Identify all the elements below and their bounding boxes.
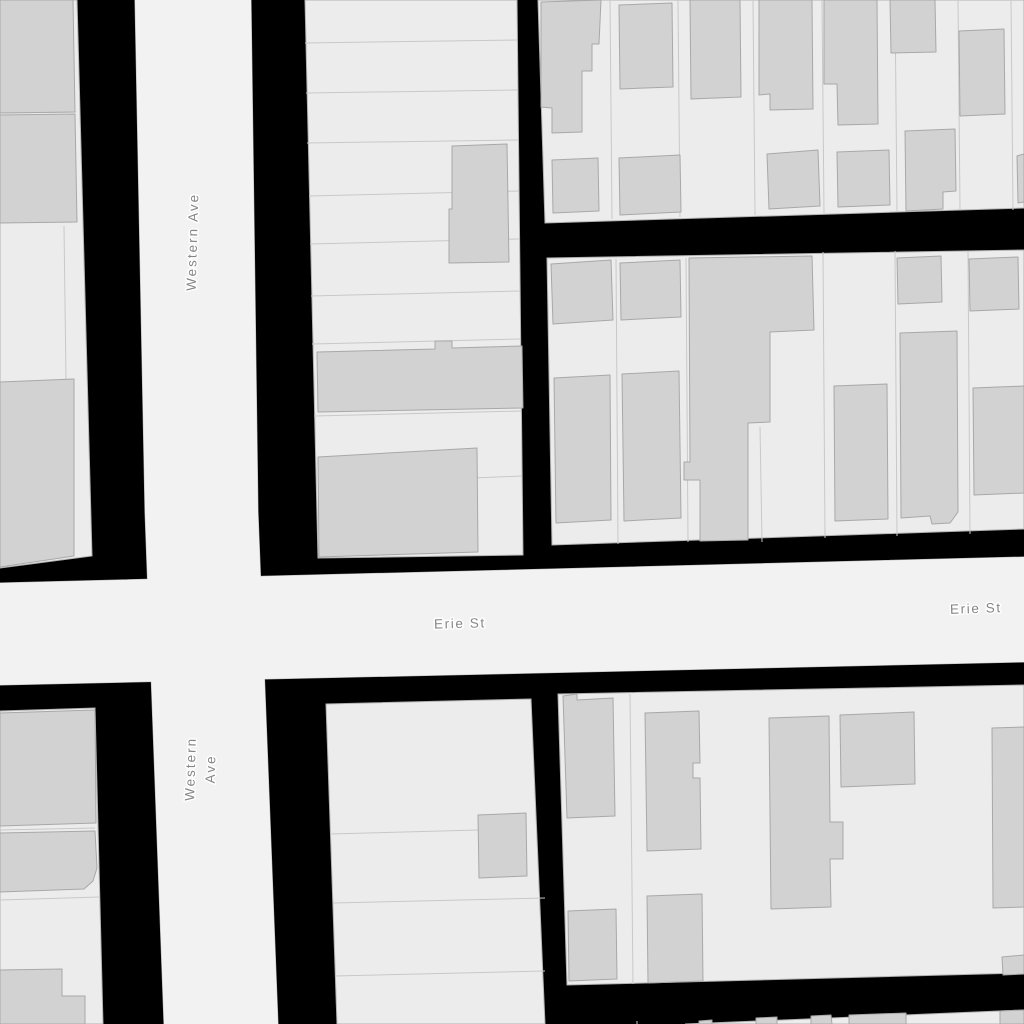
- street-label-western-ave-bottom: Ave: [203, 754, 219, 783]
- building-footprint: [690, 0, 741, 99]
- building-footprint: [837, 150, 890, 207]
- street-label-erie-st-west: Erie St: [434, 615, 486, 631]
- building-footprint: [699, 1020, 712, 1024]
- building-footprint: [969, 257, 1019, 311]
- building-footprint: [318, 448, 478, 557]
- building-footprint: [619, 3, 673, 89]
- street-label-western-ave-bottom: Western: [182, 737, 199, 801]
- building-footprint: [0, 831, 97, 892]
- building-footprint: [840, 712, 915, 787]
- building-footprint: [317, 341, 523, 412]
- building-footprint: [619, 155, 681, 215]
- street-label-western-ave-top: Western Ave: [184, 193, 202, 291]
- building-footprint: [900, 331, 958, 524]
- map-canvas[interactable]: Western AveWesternAveErie StErie St: [0, 0, 1024, 1024]
- building-footprint: [449, 144, 509, 263]
- building-footprint: [622, 371, 681, 521]
- building-footprint: [1002, 955, 1024, 975]
- building-footprint: [563, 694, 615, 818]
- building-footprint: [834, 384, 888, 521]
- street-label-erie-st-east: Erie St: [950, 600, 1002, 617]
- building-footprint: [552, 158, 599, 213]
- building-footprint: [959, 29, 1005, 116]
- building-footprint: [645, 711, 701, 851]
- building-footprint: [897, 256, 942, 304]
- street-surface-western-ave: [135, 0, 278, 1024]
- building-footprint: [0, 114, 77, 223]
- building-footprint: [759, 0, 813, 110]
- building-footprint: [767, 150, 820, 209]
- building-footprint: [0, 710, 96, 826]
- building-footprint: [478, 813, 527, 878]
- map-svg: Western AveWesternAveErie StErie St: [0, 0, 1024, 1024]
- building-footprint: [1017, 154, 1024, 203]
- building-footprint: [756, 1017, 777, 1024]
- building-footprint: [811, 1015, 832, 1024]
- building-footprint: [568, 909, 617, 981]
- building-footprint: [0, 379, 74, 567]
- building-footprint: [973, 386, 1024, 495]
- building-footprint: [890, 0, 936, 53]
- building-footprint: [554, 375, 611, 523]
- building-footprint: [551, 260, 613, 324]
- building-footprint: [647, 894, 703, 983]
- building-footprint: [1000, 1010, 1024, 1024]
- building-footprint: [849, 1013, 906, 1024]
- building-footprint: [0, 0, 75, 113]
- building-footprint: [620, 260, 681, 320]
- building-footprint: [992, 727, 1024, 908]
